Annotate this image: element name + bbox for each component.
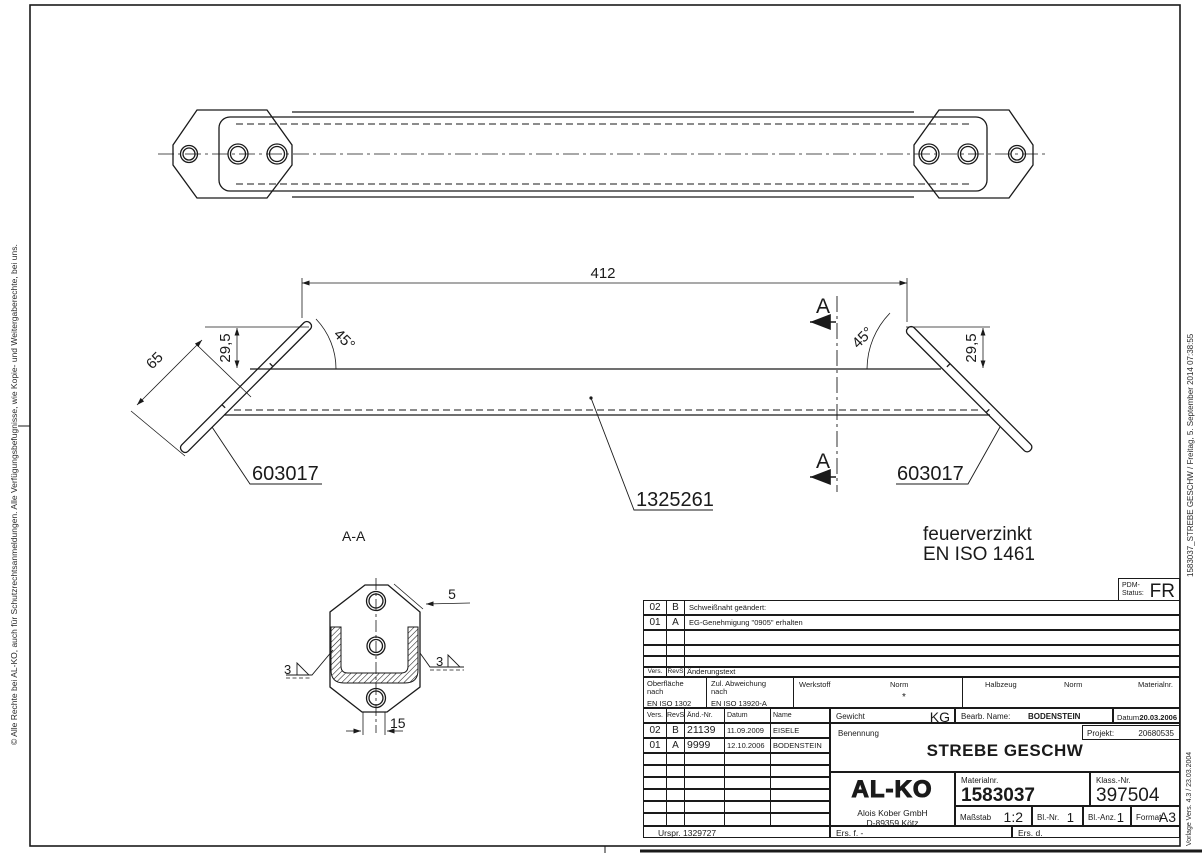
changes-rev: A bbox=[667, 739, 685, 752]
format-value: A3 bbox=[1159, 809, 1176, 825]
ersf-value: Ers. f. - bbox=[836, 828, 863, 838]
changes-name: EISELE bbox=[771, 724, 829, 737]
massstab-cell: Maßstab 1:2 bbox=[955, 806, 1032, 826]
surface-label: Oberflächenach bbox=[647, 680, 706, 697]
weld-3-left-label: 3 bbox=[284, 662, 291, 677]
pdm-status-label: PDM-Status: bbox=[1122, 582, 1150, 598]
revision-text: Schweißnaht geändert: bbox=[685, 601, 1179, 614]
dim-29-5-right-label: 29,5 bbox=[963, 333, 980, 362]
gewicht-cell: Gewicht KG bbox=[830, 708, 955, 723]
revision-rev: A bbox=[667, 616, 685, 629]
angled-plate-left bbox=[179, 320, 313, 454]
werkstoff-norm-label: Norm bbox=[890, 680, 908, 689]
blnr-label: Bl.-Nr. bbox=[1037, 813, 1059, 822]
changes-datum: 11.09.2009 bbox=[725, 724, 771, 737]
deviation-cell: Zul. Abweichungnach EN ISO 13920-A bbox=[707, 678, 794, 707]
datum-cell: Datum: 20.03.2006 bbox=[1113, 708, 1180, 723]
angle-45-left-label: 45° bbox=[330, 326, 358, 354]
bearb-cell: Bearb. Name: BODENSTEIN bbox=[955, 708, 1113, 723]
angle-45-right-label: 45° bbox=[849, 324, 877, 352]
alko-logo-text: AL-KO bbox=[852, 776, 933, 803]
copyright-margin-text: © Alle Rechte bei AL-KO, auch für Schutz… bbox=[9, 244, 19, 745]
urspr-value: Urspr. 1329727 bbox=[658, 828, 716, 838]
dim-5-label: 5 bbox=[448, 586, 456, 602]
revision-row: 02 B Schweißnaht geändert: bbox=[643, 600, 1180, 615]
company-line1: Alois Kober GmbH bbox=[831, 808, 954, 818]
revision-header-text: Änderungstext bbox=[685, 668, 1179, 676]
deviation-value: EN ISO 13920-A bbox=[711, 700, 793, 708]
fillet-weld-icon bbox=[448, 655, 460, 667]
part-number-center: 1325261 bbox=[636, 489, 714, 511]
part-number-right: 603017 bbox=[897, 463, 964, 485]
changes-vers: 01 bbox=[644, 739, 667, 752]
changes-row-empty bbox=[643, 765, 830, 777]
note-en-iso-1461: EN ISO 1461 bbox=[923, 544, 1035, 565]
angle-arc-left bbox=[316, 319, 336, 369]
revision-text: EG-Genehmigung "0905" erhalten bbox=[685, 616, 1179, 629]
changes-nr: 21139 bbox=[685, 724, 725, 737]
materialnr-label: Materialnr. bbox=[961, 776, 998, 785]
massstab-value: 1:2 bbox=[1004, 809, 1023, 825]
ersf-cell: Ers. f. - bbox=[830, 826, 1012, 838]
changes-datum: 12.10.2006 bbox=[725, 739, 771, 752]
materialnr-value: 1583037 bbox=[961, 785, 1035, 807]
klassnr-box: Klass.-Nr. 397504 bbox=[1090, 772, 1180, 806]
changes-row: 01 A 9999 12.10.2006 BODENSTEIN bbox=[643, 738, 830, 753]
blanz-cell: Bl.-Anz. 1 bbox=[1083, 806, 1131, 826]
bearb-value: BODENSTEIN bbox=[1028, 712, 1080, 721]
klassnr-label: Klass.-Nr. bbox=[1096, 776, 1131, 785]
fillet-weld-icon bbox=[297, 663, 309, 675]
dim-29-5-left-label: 29,5 bbox=[217, 333, 234, 362]
changes-row-empty bbox=[643, 801, 830, 813]
massstab-label: Maßstab bbox=[960, 813, 991, 822]
note-feuerverzinkt: feuerverzinkt bbox=[923, 524, 1032, 545]
part-name: STREBE GESCHW bbox=[831, 741, 1179, 761]
blanz-label: Bl.-Anz. bbox=[1088, 813, 1116, 822]
section-plate-outline bbox=[330, 585, 420, 712]
bearb-label: Bearb. Name: bbox=[961, 712, 1010, 721]
projekt-box: Projekt: 20680535 bbox=[1082, 725, 1180, 740]
deviation-label: Zul. Abweichungnach bbox=[711, 680, 793, 697]
format-cell: Format A3 bbox=[1131, 806, 1180, 826]
revision-row-empty bbox=[643, 645, 1180, 656]
revision-row-empty bbox=[643, 656, 1180, 667]
changes-rev: B bbox=[667, 724, 685, 737]
logo-box: AL-KO Alois Kober GmbH D-89359 Kötz bbox=[830, 772, 955, 826]
halbzeug-label: Halbzeug bbox=[985, 680, 1017, 689]
revision-row: 01 A EG-Genehmigung "0905" erhalten bbox=[643, 615, 1180, 630]
revision-vers: 01 bbox=[644, 616, 667, 629]
changes-row-empty bbox=[643, 813, 830, 826]
blanz-value: 1 bbox=[1117, 810, 1124, 825]
changes-nr: 9999 bbox=[685, 739, 725, 752]
dim-412-label: 412 bbox=[590, 265, 615, 282]
ersd-value: Ers. d. bbox=[1018, 828, 1043, 838]
klassnr-value: 397504 bbox=[1096, 785, 1159, 807]
changes-header-nr: Änd.-Nr. bbox=[685, 709, 725, 722]
section-letter-top: A bbox=[816, 295, 830, 318]
format-label: Format bbox=[1136, 813, 1161, 822]
halbzeug-norm-label: Norm bbox=[1064, 680, 1082, 689]
urspr-cell: Urspr. 1329727 bbox=[643, 826, 830, 838]
changes-header-vers: Vers. bbox=[644, 709, 667, 722]
front-view bbox=[179, 320, 1034, 454]
revision-header-vers: Vers. bbox=[644, 668, 667, 676]
changes-header-row: Vers. RevS Änd.-Nr. Datum Name bbox=[643, 708, 830, 723]
weld-leader-left bbox=[286, 650, 333, 675]
halbzeug-cell: Halbzeug Norm Materialnr. bbox=[963, 678, 1179, 707]
ersd-cell: Ers. d. bbox=[1012, 826, 1180, 838]
revision-row-empty bbox=[643, 630, 1180, 645]
surface-cell: Oberflächenach EN ISO 1302 bbox=[644, 678, 707, 707]
leader-lines bbox=[212, 396, 1000, 510]
materialnr-box: Materialnr. 1583037 bbox=[955, 772, 1090, 806]
part-number-left: 603017 bbox=[252, 463, 319, 485]
changes-header-name: Name bbox=[771, 709, 829, 722]
projekt-value: 20680535 bbox=[1138, 729, 1174, 738]
changes-row-empty bbox=[643, 753, 830, 765]
alko-logo: AL-KO bbox=[832, 775, 953, 803]
changes-name: BODENSTEIN bbox=[771, 739, 829, 752]
revision-vers: 02 bbox=[644, 601, 667, 614]
blnr-value: 1 bbox=[1067, 810, 1074, 825]
revision-rev: B bbox=[667, 601, 685, 614]
revision-header-rev: RevS bbox=[667, 668, 685, 676]
benennung-label: Benennung bbox=[838, 729, 879, 738]
dim-line-65 bbox=[137, 340, 202, 405]
weld-3-right-label: 3 bbox=[436, 654, 443, 669]
blnr-cell: Bl.-Nr. 1 bbox=[1032, 806, 1083, 826]
datum-value: 20.03.2006 bbox=[1139, 713, 1177, 722]
changes-row: 02 B 21139 11.09.2009 EISELE bbox=[643, 723, 830, 738]
revision-header-row: Vers. RevS Änderungstext bbox=[643, 667, 1180, 677]
filename-margin-text: 1583037_STREBE GESCHW / Freitag, 5. Sept… bbox=[1186, 334, 1195, 577]
specs-row: Oberflächenach EN ISO 1302 Zul. Abweichu… bbox=[643, 677, 1180, 708]
werkstoff-cell: Werkstoff Norm * bbox=[794, 678, 963, 707]
werkstoff-value: * bbox=[902, 692, 906, 703]
template-version-text: Vorlage Vers. 4.3 / 23.03.2004 bbox=[1186, 752, 1193, 846]
changes-header-rev: RevS bbox=[667, 709, 685, 722]
dim-65-label: 65 bbox=[143, 349, 167, 373]
datum-label: Datum: bbox=[1117, 713, 1141, 722]
changes-header-datum: Datum bbox=[725, 709, 771, 722]
section-view-title: A-A bbox=[342, 528, 366, 544]
dim-15-label: 15 bbox=[390, 715, 406, 731]
surface-value: EN ISO 1302 bbox=[647, 700, 706, 708]
changes-row-empty bbox=[643, 777, 830, 789]
dim-line-5 bbox=[426, 603, 470, 604]
werkstoff-label: Werkstoff bbox=[799, 680, 830, 689]
section-letter-bottom: A bbox=[816, 450, 830, 473]
gewicht-label: Gewicht bbox=[836, 712, 865, 721]
drawing-sheet: 412 45° 45° 29,5 29,5 65 603017 603017 1… bbox=[0, 0, 1202, 853]
changes-vers: 02 bbox=[644, 724, 667, 737]
section-view bbox=[330, 585, 420, 712]
projekt-label: Projekt: bbox=[1087, 729, 1114, 738]
materialnr-col-label: Materialnr. bbox=[1138, 680, 1173, 689]
changes-row-empty bbox=[643, 789, 830, 801]
